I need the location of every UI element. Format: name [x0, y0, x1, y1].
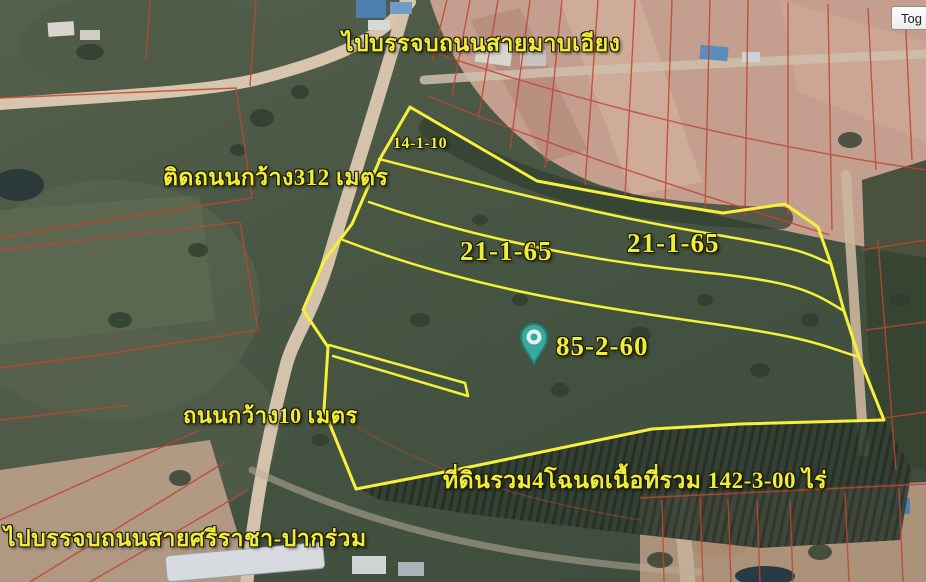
access-road-outline [329, 345, 468, 396]
parcel-area-label-85-2-60: 85-2-60 [556, 331, 648, 362]
spur-road-label: ถนนกว้าง10 เมตร [183, 398, 358, 433]
bottom-road-label: ไปบรรจบถนนสายศรีราชา-ปากร่วม [4, 521, 367, 557]
parcel-area-label-21-1-65-west: 21-1-65 [460, 236, 552, 267]
satellite-map[interactable]: ไปบรรจบถนนสายมาบเอียง ติดถนนกว้าง312 เมต… [0, 0, 926, 582]
top-road-label: ไปบรรจบถนนสายมาบเอียง [342, 26, 620, 62]
total-area-label: ที่ดินรวม4โฉนดเนื้อที่รวม 142-3-00 ไร่ [443, 463, 827, 499]
parcel-area-label-21-1-65-east: 21-1-65 [627, 228, 719, 259]
toggle-button[interactable]: Tog [891, 6, 926, 30]
location-pin-icon[interactable] [521, 324, 547, 364]
west-road-label: ติดถนนกว้าง312 เมตร [163, 160, 388, 196]
parcel-area-label-14-1-10: 14-1-10 [393, 135, 447, 153]
